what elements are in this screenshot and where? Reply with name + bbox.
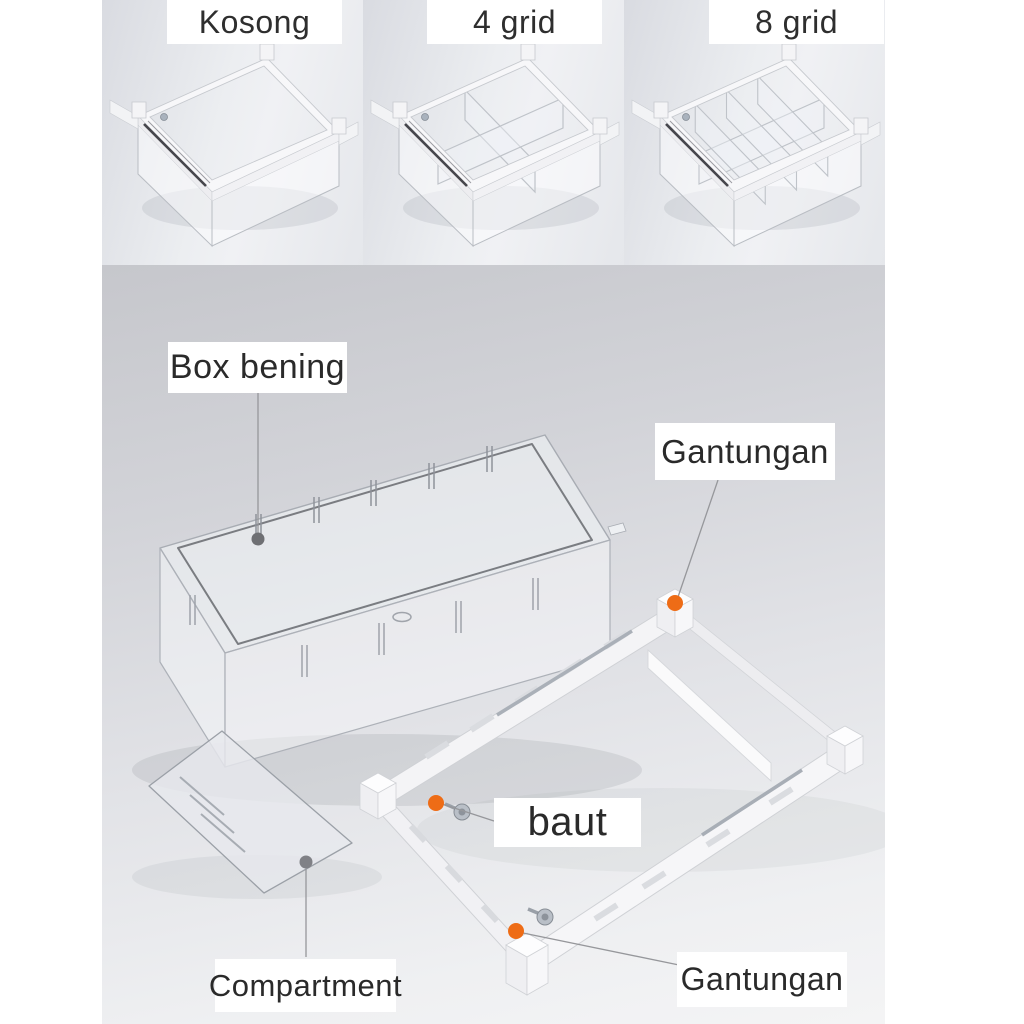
bolt-screw-icon — [528, 909, 553, 925]
label-gantungan-top: Gantungan — [655, 423, 835, 480]
hook-post-south — [506, 933, 548, 995]
label-gantungan-bottom: Gantungan — [677, 952, 847, 1007]
variant-strip: Kosong — [102, 0, 885, 265]
label-compartment: Compartment — [215, 959, 396, 1012]
hook-post-east — [827, 726, 863, 774]
variant-8-grid-photo: 8 grid — [624, 0, 885, 265]
hook-post-west — [360, 773, 396, 819]
bolt-icon — [683, 114, 690, 121]
leader-line-gantungan-top — [678, 480, 718, 597]
parts-diagram: Box bening Gantungan baut Compartment Ga… — [102, 265, 885, 1024]
label-box-bening: Box bening — [168, 342, 347, 393]
variant-label-4-grid: 4 grid — [427, 0, 602, 44]
marker-dot-gantungan-bottom — [508, 923, 524, 939]
variant-label-8-grid: 8 grid — [709, 0, 884, 44]
marker-dot-baut — [428, 795, 444, 811]
label-baut: baut — [494, 798, 641, 847]
product-annotation-image: Kosong — [0, 0, 1024, 1024]
clear-box-part — [160, 435, 626, 767]
variant-4-grid-photo: 4 grid — [363, 0, 624, 265]
bolt-icon — [161, 114, 168, 121]
image-content: Kosong — [102, 0, 885, 1024]
marker-dot-compartment — [300, 856, 313, 869]
variant-label-kosong: Kosong — [167, 0, 342, 44]
marker-dot-box-bening — [252, 533, 265, 546]
variant-empty-photo: Kosong — [102, 0, 363, 265]
marker-dot-gantungan-top — [667, 595, 683, 611]
bolt-icon — [422, 114, 429, 121]
